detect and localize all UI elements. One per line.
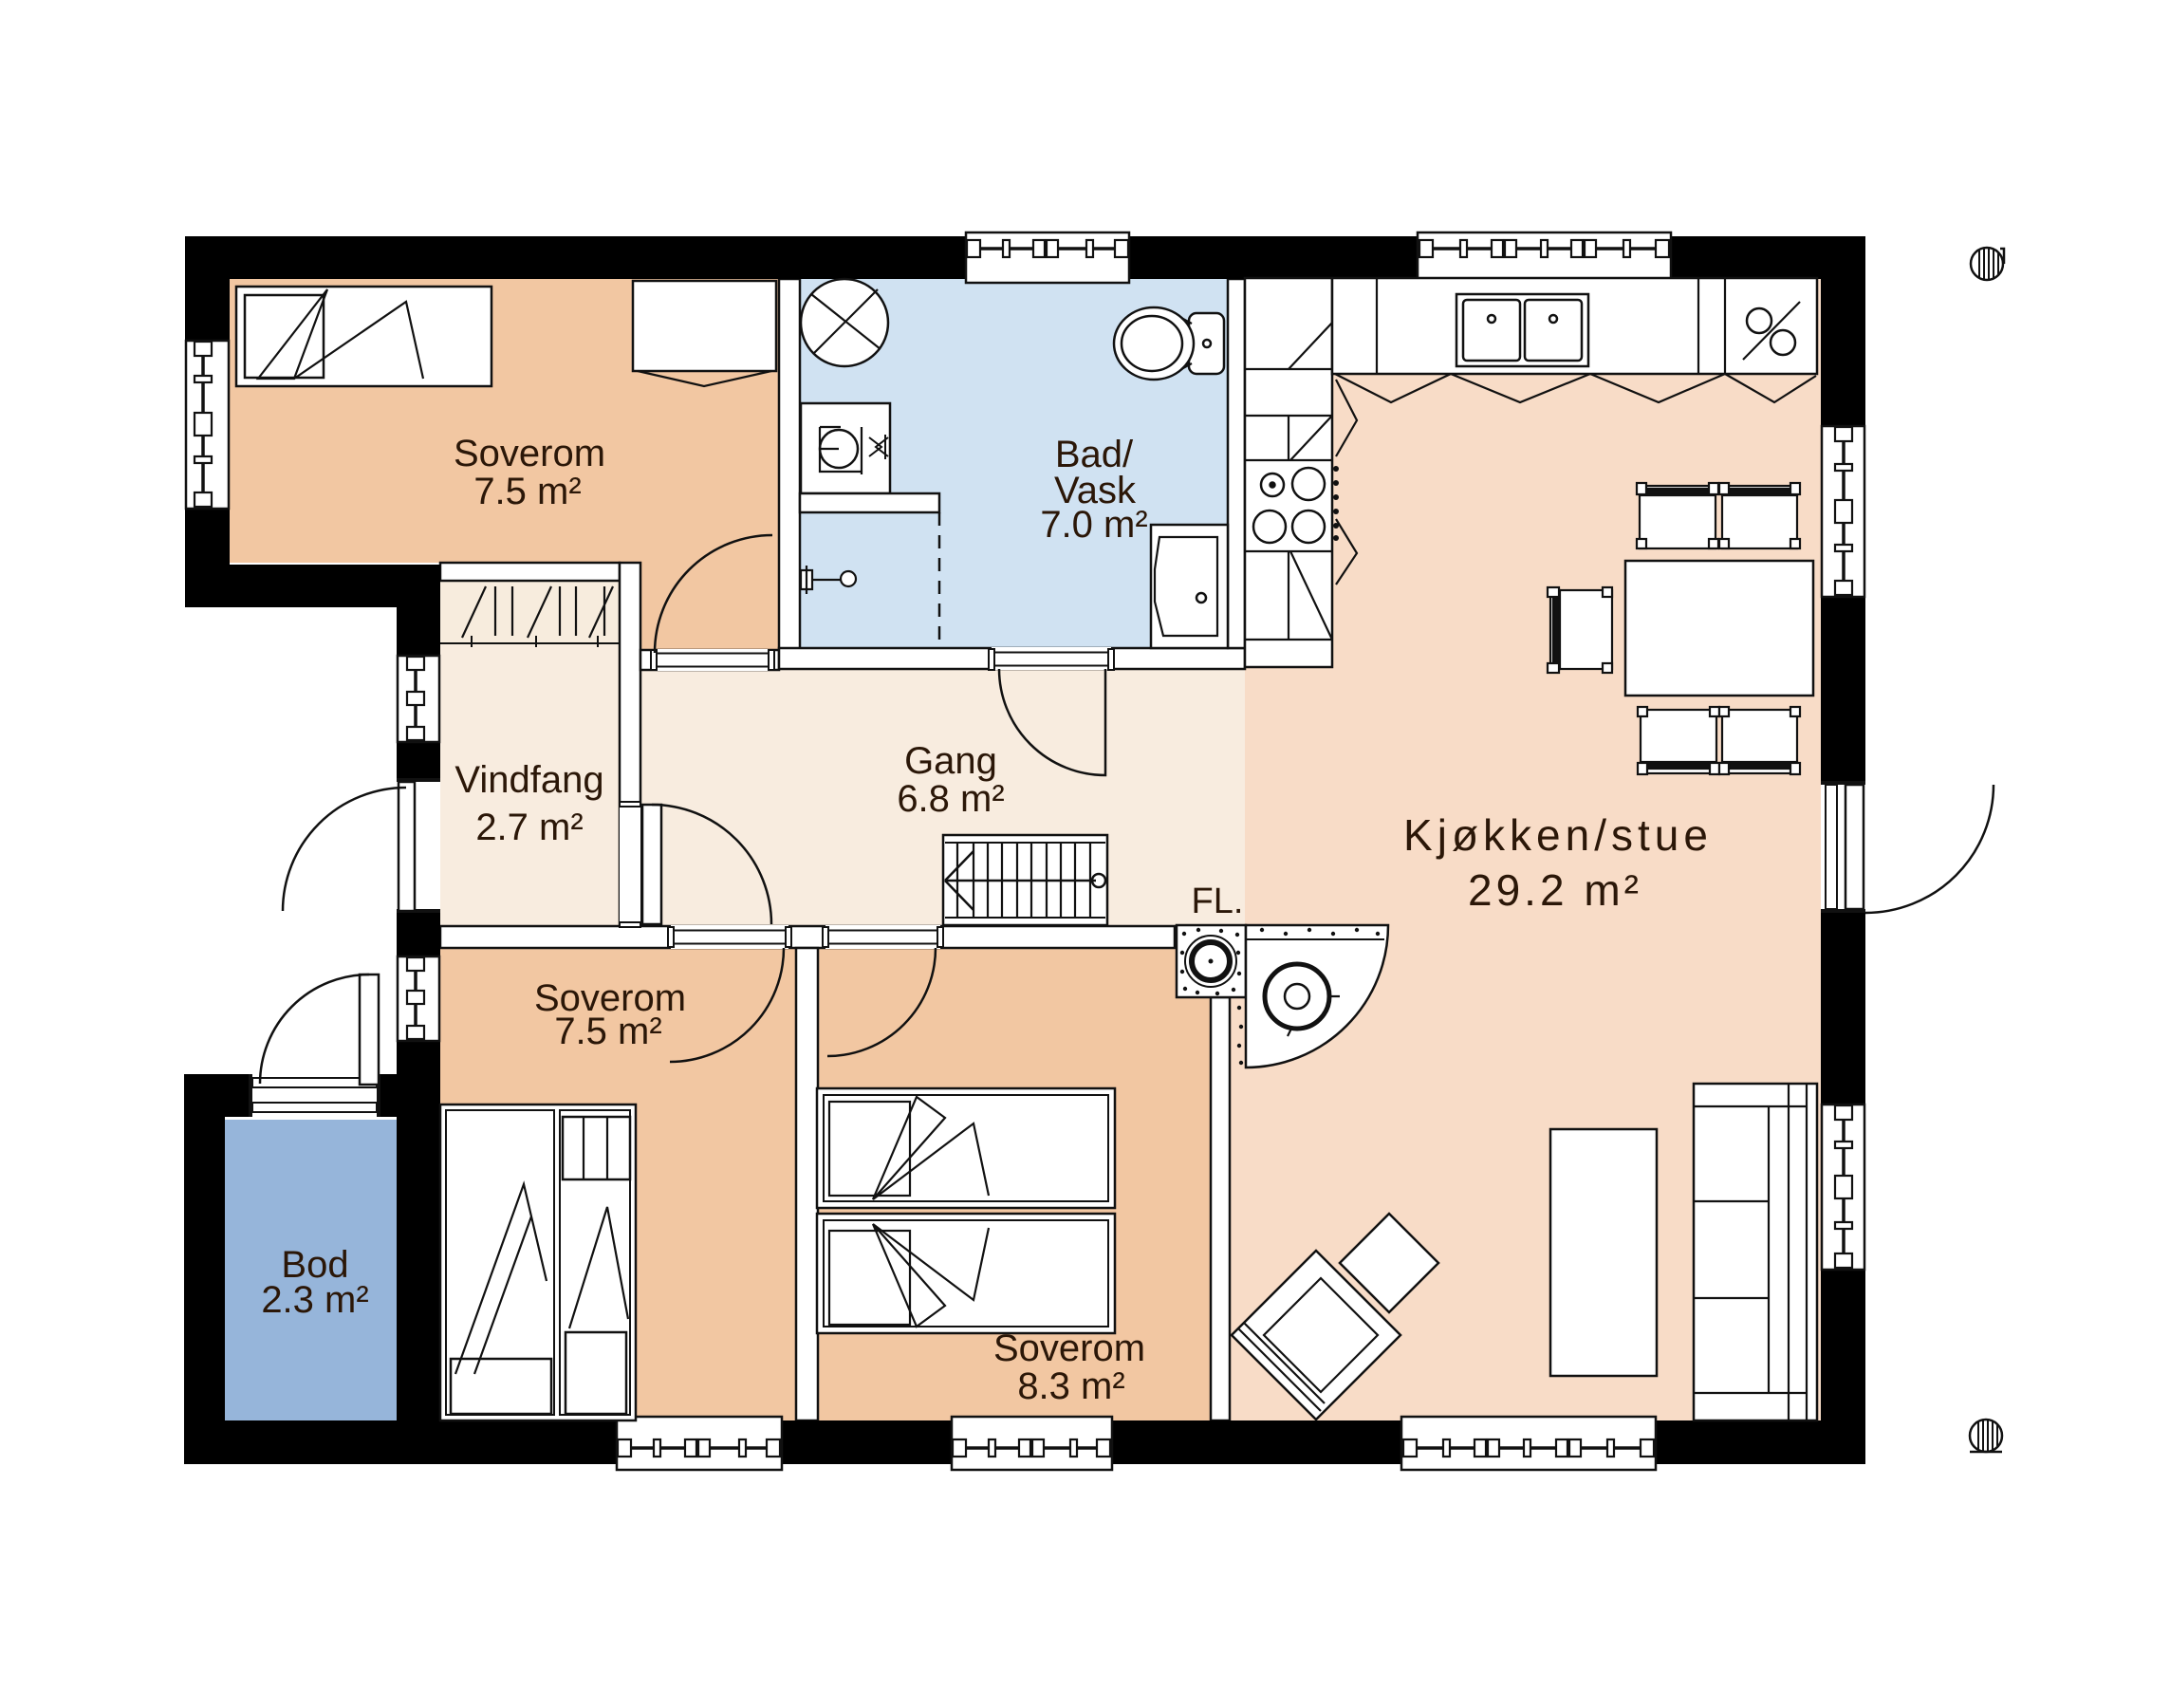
svg-text:Gang: Gang (904, 740, 997, 782)
svg-text:6.8 m²: 6.8 m² (897, 778, 1004, 820)
svg-text:Vindfang: Vindfang (454, 759, 603, 801)
svg-text:8.3 m²: 8.3 m² (1017, 1365, 1124, 1407)
svg-text:29.2 m²: 29.2 m² (1468, 865, 1642, 915)
svg-text:7.5 m²: 7.5 m² (473, 471, 581, 512)
svg-text:Soverom: Soverom (454, 433, 605, 474)
svg-text:FL.: FL. (1192, 882, 1244, 921)
svg-text:2.7 m²: 2.7 m² (475, 807, 583, 848)
svg-text:2.3 m²: 2.3 m² (261, 1279, 368, 1321)
svg-text:7.5 m²: 7.5 m² (554, 1011, 661, 1052)
svg-text:Kjøkken/stue: Kjøkken/stue (1403, 810, 1713, 860)
svg-text:Soverom: Soverom (993, 1327, 1145, 1369)
svg-text:7.0 m²: 7.0 m² (1040, 504, 1147, 546)
